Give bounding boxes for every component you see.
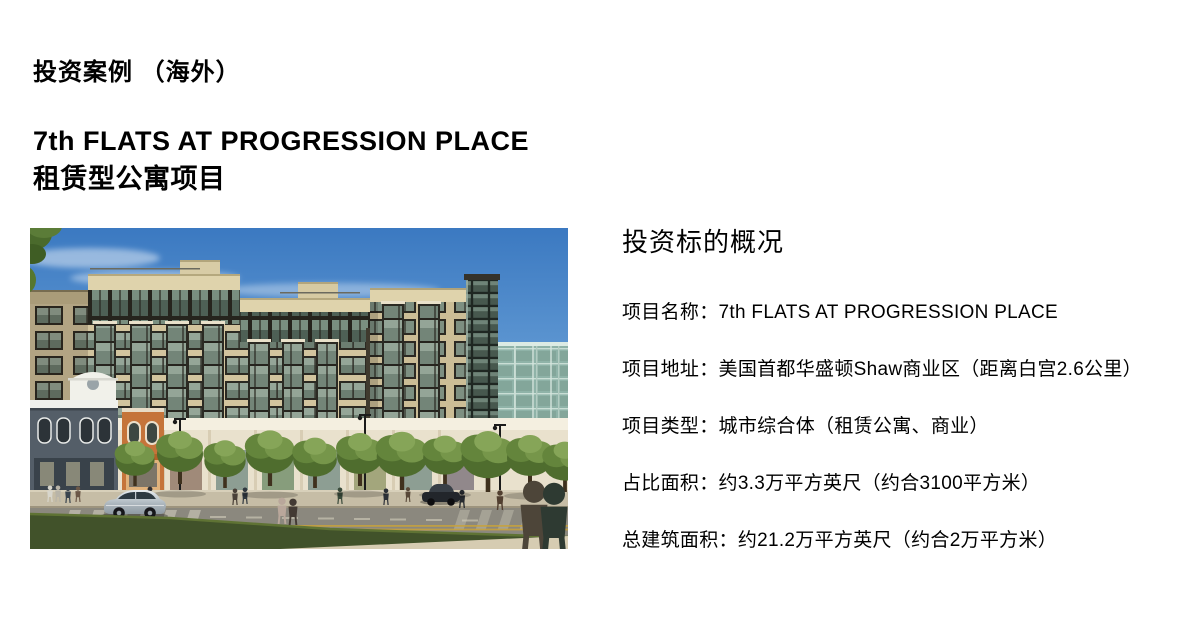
overview-item-type: 项目类型：城市综合体（租赁公寓、商业） (622, 417, 1182, 436)
overview-item-value: 约21.2万平方英尺（约合2万平方米） (738, 530, 1057, 551)
overview-item-label: 占比面积： (622, 473, 719, 494)
overview-item-label: 项目地址： (622, 359, 719, 380)
overview-item-label: 项目类型： (622, 416, 719, 437)
overview-item-value: 美国首都华盛顿Shaw商业区（距离白宫2.6公里） (719, 359, 1142, 380)
project-title-line1: 7th FLATS AT PROGRESSION PLACE (33, 122, 529, 160)
overview-item-value: 约3.3万平方英尺（约合3100平方米） (719, 473, 1041, 494)
overview-item-site-area: 占比面积：约3.3万平方英尺（约合3100平方米） (622, 474, 1182, 493)
overview-heading: 投资标的概况 (622, 222, 1182, 259)
slide-root: { "header": { "category": "投资案例 （海外）", "… (0, 0, 1200, 630)
project-title-line2: 租赁型公寓项目 (33, 160, 529, 198)
project-title: 7th FLATS AT PROGRESSION PLACE 租赁型公寓项目 (33, 122, 529, 198)
overview-item-label: 项目名称： (622, 302, 719, 323)
overview-item-value: 7th FLATS AT PROGRESSION PLACE (719, 302, 1059, 323)
overview-item-gfa: 总建筑面积：约21.2万平方英尺（约合2万平方米） (622, 531, 1182, 550)
overview-item-name: 项目名称：7th FLATS AT PROGRESSION PLACE (622, 303, 1182, 322)
overview-section: 投资标的概况 项目名称：7th FLATS AT PROGRESSION PLA… (622, 222, 1182, 588)
overview-item-value: 城市综合体（租赁公寓、商业） (719, 416, 989, 437)
overview-item-label: 总建筑面积： (622, 530, 738, 551)
building-rendering-illustration (30, 228, 568, 549)
category-title: 投资案例 （海外） (33, 52, 241, 87)
project-photo (30, 228, 568, 549)
overview-item-address: 项目地址：美国首都华盛顿Shaw商业区（距离白宫2.6公里） (622, 360, 1182, 379)
